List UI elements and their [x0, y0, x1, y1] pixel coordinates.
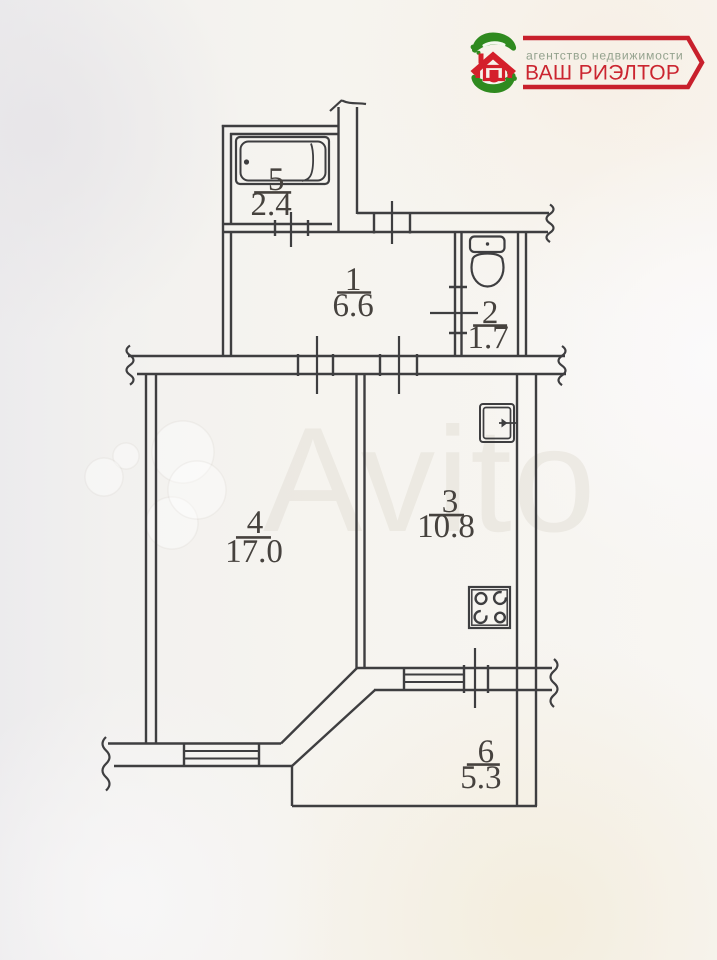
svg-text:2.4: 2.4 [251, 187, 292, 223]
svg-text:1.7: 1.7 [467, 320, 508, 356]
svg-text:10.8: 10.8 [417, 509, 475, 545]
svg-text:агентство недвижимости: агентство недвижимости [526, 48, 683, 62]
svg-text:ВАШ РИЭЛТОР: ВАШ РИЭЛТОР [525, 61, 680, 84]
svg-text:5.3: 5.3 [460, 760, 501, 796]
svg-text:17.0: 17.0 [225, 534, 283, 570]
svg-text:6.6: 6.6 [332, 288, 373, 324]
